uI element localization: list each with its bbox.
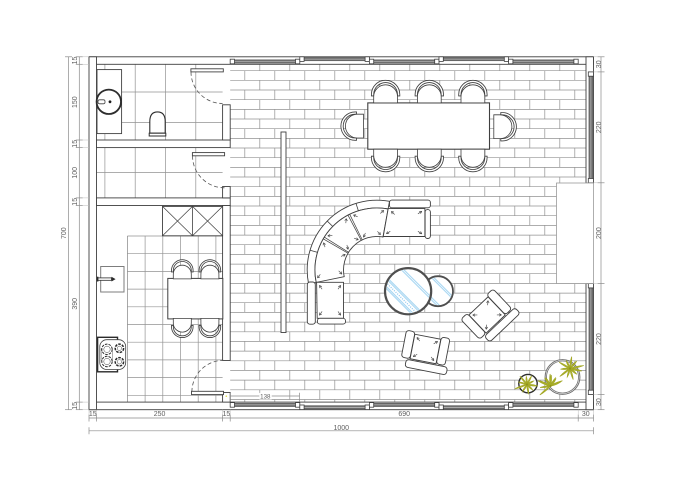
svg-text:690: 690: [398, 411, 410, 418]
svg-text:390: 390: [72, 298, 79, 310]
svg-text:30: 30: [596, 398, 603, 406]
svg-text:15: 15: [223, 411, 231, 418]
svg-text:220: 220: [596, 333, 603, 345]
svg-text:30: 30: [582, 411, 590, 418]
svg-text:700: 700: [61, 227, 68, 239]
svg-text:15: 15: [72, 198, 79, 206]
svg-text:15: 15: [72, 402, 79, 410]
svg-text:15: 15: [72, 140, 79, 148]
svg-text:100: 100: [72, 167, 79, 179]
svg-text:250: 250: [154, 411, 166, 418]
svg-text:150: 150: [72, 96, 79, 108]
svg-text:220: 220: [596, 121, 603, 133]
svg-text:200: 200: [596, 227, 603, 239]
svg-text:15: 15: [72, 57, 79, 65]
svg-text:1000: 1000: [334, 425, 350, 432]
svg-text:15: 15: [89, 411, 97, 418]
svg-text:138: 138: [260, 394, 271, 401]
svg-text:30: 30: [596, 60, 603, 68]
